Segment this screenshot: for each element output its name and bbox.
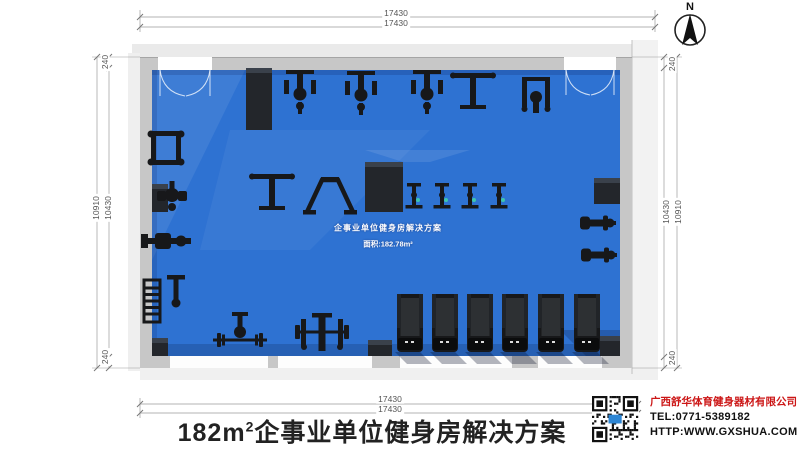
title-superscript: 2 [246,419,255,435]
dim-left-outer: 10910 [92,194,101,222]
floor-caption-area: 面积:182.78m² [363,239,413,250]
structural-column [246,68,272,130]
dim-left-wall-top: 240 [101,53,110,71]
gym-floor-plan-page: 17430 17430 17430 17430 10910 10430 240 … [0,0,800,450]
structural-column [368,340,392,356]
dim-bottom-inner: 17430 [376,405,404,414]
dim-right-outer: 10910 [674,198,683,226]
compass-north-label: N [686,1,694,13]
north-arrow-icon [675,14,705,45]
dim-top-inner: 17430 [382,19,410,28]
company-website: HTTP:WWW.GXSHUA.COM [650,425,797,440]
page-title: 182m2企事业单位健身房解决方案 [178,413,567,449]
structural-column [600,336,620,356]
company-name: 广西舒华体育健身器材有限公司 [650,395,797,410]
company-info: 广西舒华体育健身器材有限公司 TEL:0771-5389182 HTTP:WWW… [650,395,797,440]
dim-right-inner: 10430 [662,198,671,226]
structural-column [365,162,403,212]
title-prefix: 182m [178,419,246,447]
structural-column [594,178,620,204]
dim-left-inner: 10430 [104,194,113,222]
floor-caption-title: 企事业单位健身房解决方案 [334,223,442,234]
dim-bottom-outer: 17430 [376,395,404,404]
company-phone: TEL:0771-5389182 [650,410,797,425]
structural-column [152,338,168,356]
dim-right-wall-top: 240 [668,55,677,73]
dim-top-outer: 17430 [382,9,410,18]
dim-right-wall-bottom: 240 [668,349,677,367]
dim-left-wall-bottom: 240 [101,348,110,366]
title-suffix: 企事业单位健身房解决方案 [254,419,566,447]
qr-code [592,396,639,443]
